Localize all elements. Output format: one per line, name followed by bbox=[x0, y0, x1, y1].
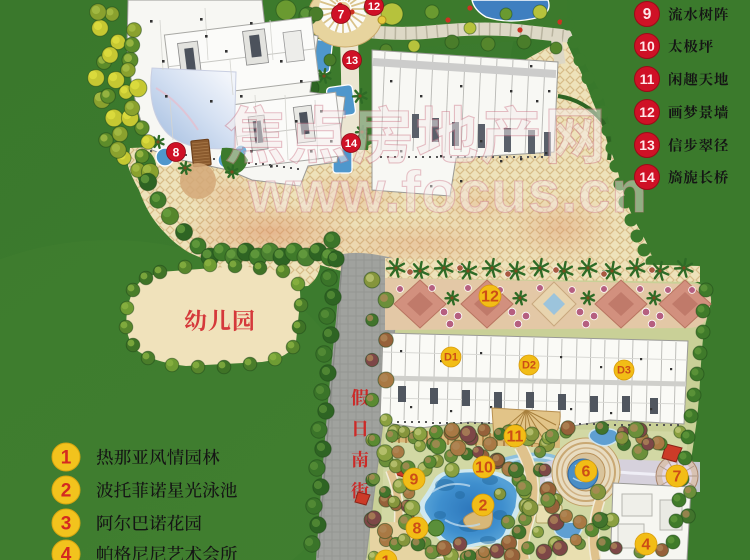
svg-text:8: 8 bbox=[413, 520, 422, 537]
svg-text:14: 14 bbox=[345, 138, 358, 150]
svg-text:4: 4 bbox=[642, 536, 651, 553]
svg-text:D2: D2 bbox=[522, 360, 536, 372]
svg-text:7: 7 bbox=[338, 7, 345, 21]
svg-text:D1: D1 bbox=[444, 352, 458, 364]
svg-text:9: 9 bbox=[643, 6, 652, 23]
svg-text:12: 12 bbox=[481, 288, 499, 305]
svg-text:11: 11 bbox=[640, 71, 655, 87]
svg-text:2: 2 bbox=[61, 481, 72, 502]
svg-text:6: 6 bbox=[582, 463, 591, 480]
svg-text:8: 8 bbox=[173, 145, 180, 159]
svg-text:7: 7 bbox=[673, 468, 682, 485]
svg-text:www.focus.cn: www.focus.cn bbox=[247, 160, 648, 225]
svg-text:13: 13 bbox=[346, 55, 358, 67]
svg-text:2: 2 bbox=[479, 497, 488, 514]
svg-text:10: 10 bbox=[475, 459, 493, 476]
svg-text:10: 10 bbox=[639, 38, 655, 54]
svg-text:12: 12 bbox=[368, 1, 380, 13]
svg-text:D3: D3 bbox=[617, 365, 631, 377]
svg-text:9: 9 bbox=[410, 471, 419, 488]
svg-text:1: 1 bbox=[61, 448, 72, 469]
svg-text:1: 1 bbox=[382, 553, 391, 560]
svg-text:3: 3 bbox=[61, 514, 72, 535]
svg-text:12: 12 bbox=[639, 104, 655, 120]
svg-text:14: 14 bbox=[639, 169, 655, 185]
svg-text:11: 11 bbox=[507, 428, 524, 445]
svg-text:13: 13 bbox=[639, 137, 655, 153]
svg-text:4: 4 bbox=[61, 545, 72, 560]
